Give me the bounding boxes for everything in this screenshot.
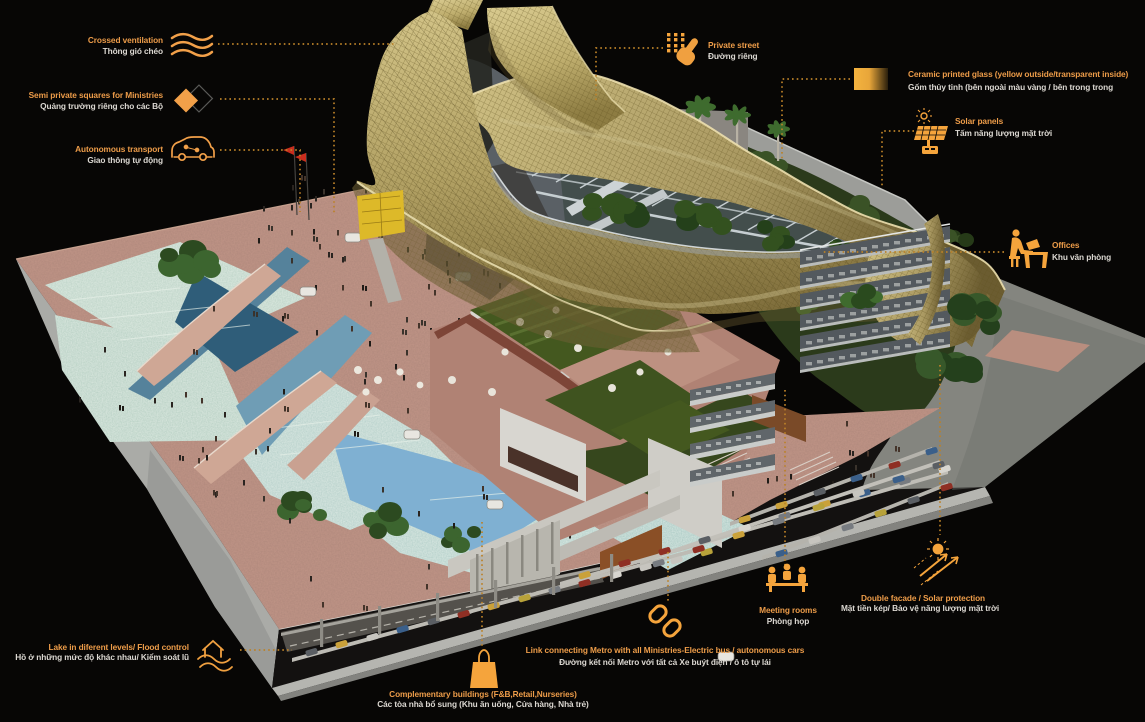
svg-text:Solar panels: Solar panels: [955, 116, 1004, 126]
svg-text:Private street: Private street: [708, 40, 760, 50]
svg-text:Ceramic printed glass (yellow: Ceramic printed glass (yellow outside/tr…: [908, 69, 1129, 79]
svg-text:Offices: Offices: [1052, 240, 1080, 250]
svg-text:Link connecting Metro with all: Link connecting Metro with all Ministrie…: [526, 645, 805, 655]
svg-text:Khu văn phòng: Khu văn phòng: [1052, 252, 1111, 262]
svg-text:Đường kết nối Metro với tất cả: Đường kết nối Metro với tất cả Xe buýt đ…: [559, 657, 771, 667]
svg-text:Thông gió chéo: Thông gió chéo: [103, 46, 163, 56]
svg-text:Quảng trường riêng cho các Bộ: Quảng trường riêng cho các Bộ: [40, 101, 163, 111]
svg-text:Các tòa nhà bổ sung (Khu ăn uố: Các tòa nhà bổ sung (Khu ăn uống, Cửa hà…: [377, 699, 589, 709]
svg-text:Phòng họp: Phòng họp: [767, 616, 809, 626]
svg-text:Autonomous transport: Autonomous transport: [75, 144, 163, 154]
svg-text:Giao thông tự động: Giao thông tự động: [87, 155, 163, 165]
svg-text:Crossed ventilation: Crossed ventilation: [88, 35, 163, 45]
svg-text:Complementary buildings (F&B,R: Complementary buildings (F&B,Retail,Nurs…: [389, 689, 577, 699]
svg-text:Double facade / Solar protecti: Double facade / Solar protection: [861, 593, 985, 603]
svg-text:Meeting rooms: Meeting rooms: [759, 605, 817, 615]
svg-text:Tấm năng lượng mặt trời: Tấm năng lượng mặt trời: [955, 128, 1052, 138]
svg-text:Semi private squares for Minis: Semi private squares for Ministries: [29, 90, 164, 100]
svg-text:Hồ ở những mức độ khác nhau/ K: Hồ ở những mức độ khác nhau/ Kiểm soát l…: [15, 652, 189, 662]
svg-text:Đường riêng: Đường riêng: [708, 51, 758, 61]
svg-text:Mặt tiền kép/ Bảo vệ năng lượn: Mặt tiền kép/ Bảo vệ năng lượng mặt trời: [841, 603, 999, 613]
svg-text:Gốm thủy tinh (bên ngoài màu v: Gốm thủy tinh (bên ngoài màu vàng / bên …: [908, 82, 1113, 92]
svg-text:Lake in diferent levels/ Flood: Lake in diferent levels/ Flood control: [48, 642, 189, 652]
